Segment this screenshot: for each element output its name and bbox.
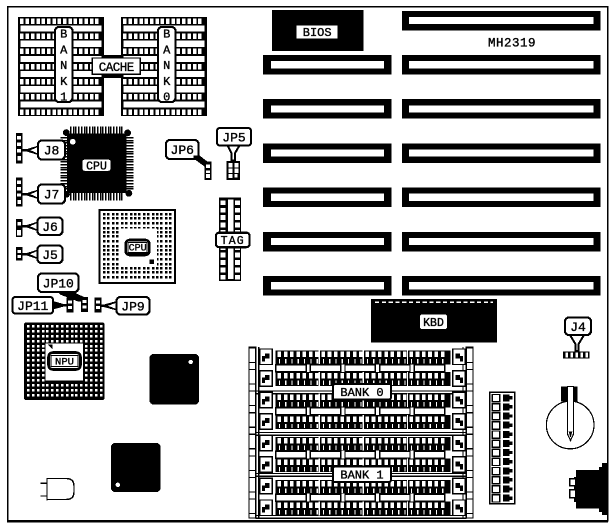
- svg-text:B: B: [60, 28, 67, 42]
- svg-text:MH2319: MH2319: [488, 37, 536, 51]
- svg-text:A: A: [163, 43, 171, 57]
- svg-text:JP11: JP11: [17, 299, 48, 314]
- svg-text:N: N: [163, 59, 170, 73]
- svg-text:JP10: JP10: [43, 276, 74, 291]
- svg-text:JP9: JP9: [121, 299, 144, 314]
- svg-text:CPU: CPU: [86, 160, 107, 173]
- svg-text:N: N: [60, 59, 67, 73]
- svg-text:CACHE: CACHE: [99, 61, 134, 75]
- svg-text:B: B: [163, 28, 170, 42]
- svg-text:K: K: [163, 75, 171, 89]
- svg-text:J5: J5: [42, 248, 58, 263]
- svg-text:A: A: [60, 43, 68, 57]
- svg-text:JP6: JP6: [171, 143, 194, 158]
- svg-text:TAG: TAG: [221, 235, 245, 248]
- svg-text:KBD: KBD: [423, 317, 444, 330]
- svg-text:J4: J4: [570, 320, 586, 335]
- svg-text:K: K: [60, 75, 68, 89]
- svg-text:BANK 0: BANK 0: [340, 386, 383, 400]
- svg-text:NPU: NPU: [55, 356, 74, 368]
- svg-text:1: 1: [60, 91, 67, 105]
- svg-text:J6: J6: [42, 220, 58, 235]
- svg-text:J8: J8: [44, 144, 60, 159]
- svg-text:CPU: CPU: [129, 244, 147, 255]
- svg-text:J7: J7: [44, 188, 60, 203]
- svg-text:BANK 1: BANK 1: [340, 469, 383, 483]
- svg-text:BIOS: BIOS: [303, 26, 332, 40]
- svg-text:JP5: JP5: [222, 130, 245, 145]
- svg-text:0: 0: [163, 91, 170, 105]
